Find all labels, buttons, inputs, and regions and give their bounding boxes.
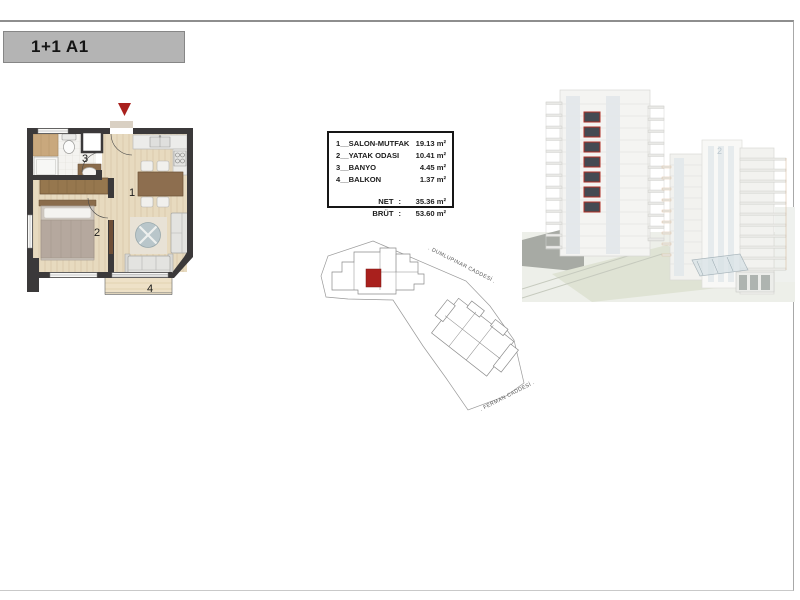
right-balconies xyxy=(648,106,664,241)
street-label-top: . DUMLUPINAR CADDESİ . xyxy=(427,245,497,285)
stove xyxy=(174,151,186,166)
tower-number-label: 2 xyxy=(717,146,722,156)
legend-row: 1__SALON-MUTFAK 19.13 m² xyxy=(336,138,446,150)
render-left-tower xyxy=(546,90,664,256)
unit-type-label: 1+1 A1 xyxy=(31,37,89,57)
legend-row: 2__YATAK ODASI 10.41 m² xyxy=(336,150,446,162)
shaft xyxy=(82,132,102,152)
entrance-threshold xyxy=(110,121,133,128)
entrance-arrow-icon xyxy=(118,103,131,116)
toilet xyxy=(62,134,76,140)
render-right-tower: 2 xyxy=(662,140,786,294)
bedroom-door-leaf xyxy=(109,220,113,254)
gross-area-row: BRÜT : 53.60 m² xyxy=(336,208,446,220)
blanket xyxy=(41,220,94,258)
highlighted-unit-windows xyxy=(584,112,600,212)
site-building-b xyxy=(425,289,524,382)
floor-plan: 1 2 3 4 xyxy=(24,100,199,310)
room-label-bedroom: 2 xyxy=(94,227,100,239)
washer-unit xyxy=(33,134,58,156)
wardrobe xyxy=(40,178,108,194)
legend-row: 3__BANYO 4.45 m² xyxy=(336,162,446,174)
room-label-balcony: 4 xyxy=(147,283,153,295)
shower xyxy=(34,157,58,177)
net-area-row: NET : 35.36 m² xyxy=(336,196,446,208)
highlighted-unit xyxy=(366,269,381,287)
legend-row: 4__BALKON 1.37 m² xyxy=(336,174,446,186)
room-label-bath: 3 xyxy=(82,153,88,165)
site-plan: . DUMLUPINAR CADDESİ . . FERMAN CADDESİ … xyxy=(318,228,548,428)
balcony-glass-door xyxy=(112,273,168,277)
left-balconies xyxy=(546,102,562,249)
area-legend: 1__SALON-MUTFAK 19.13 m² 2__YATAK ODASI … xyxy=(327,131,454,208)
building-render: 2 xyxy=(522,82,795,306)
street-label-bottom: . FERMAN CADDESİ . xyxy=(479,379,536,413)
bed-headboard xyxy=(39,200,96,206)
dining-table xyxy=(138,172,183,196)
room-label-living: 1 xyxy=(129,187,135,199)
unit-type-badge: 1+1 A1 xyxy=(3,31,185,63)
pillow xyxy=(44,208,91,218)
